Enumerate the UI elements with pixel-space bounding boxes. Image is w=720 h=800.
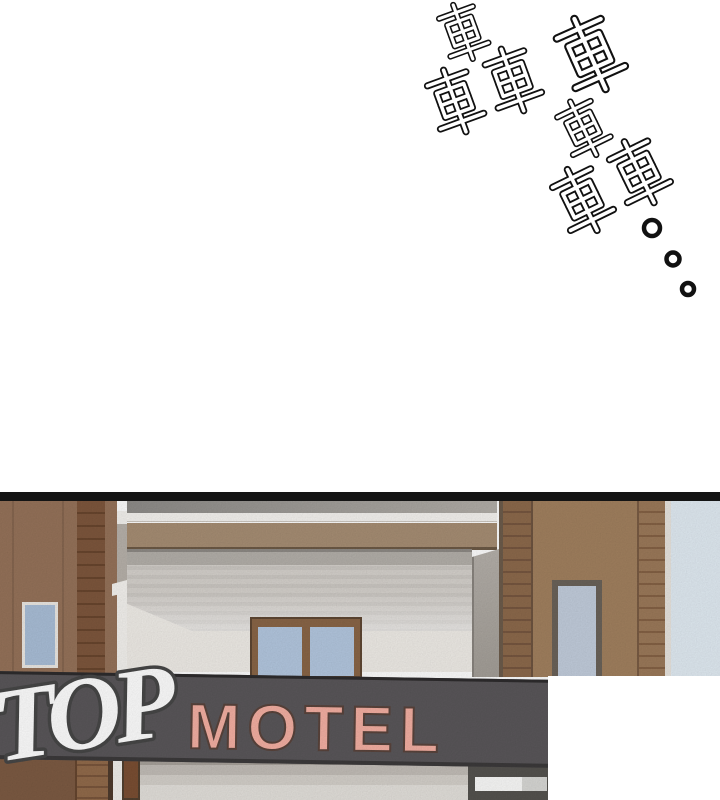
motel-panel: MOTEL TOP <box>0 492 720 800</box>
canopy-side-face <box>472 549 499 677</box>
double-window <box>250 617 362 678</box>
entry-door <box>552 580 602 677</box>
top-script-text: TOP <box>0 618 226 788</box>
door-glass <box>558 586 596 677</box>
sky <box>671 501 720 677</box>
sfx-trailing-dots <box>644 220 694 295</box>
window-pane-right <box>310 627 354 676</box>
wood-fascia <box>127 523 497 550</box>
brick-pillar-left <box>503 501 533 677</box>
white-beam <box>127 513 497 522</box>
window-pane-left <box>258 627 302 676</box>
sfx-glyph-che <box>550 8 631 100</box>
top-script-word: TOP <box>0 642 186 785</box>
sfx-rumble-text <box>0 0 720 330</box>
brick-pillar-right <box>637 501 665 677</box>
roof-strip <box>127 501 497 513</box>
sfx-glyph-hong-2 <box>520 78 675 241</box>
entrance-sign-stripe <box>475 777 547 791</box>
blank-white-panel <box>548 676 720 800</box>
sfx-glyph-hong-1 <box>402 0 545 140</box>
right-tan-wall <box>503 501 671 677</box>
panel-top-border <box>0 492 720 501</box>
